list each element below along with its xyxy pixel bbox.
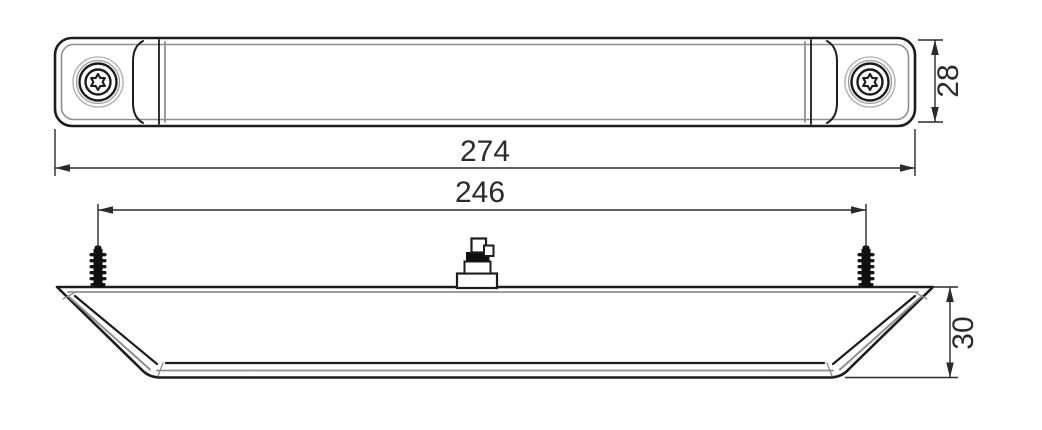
stud-thread (858, 259, 875, 262)
top-view-housing-outline (55, 38, 915, 126)
stud-thread (858, 277, 875, 280)
torx-screw-left-icon (73, 57, 123, 107)
stud-thread (90, 277, 107, 280)
stud-thread (90, 271, 107, 274)
dimension-fixing-centres: 246 (98, 176, 866, 248)
stud-thread (858, 253, 875, 256)
dim-274-arrow-left (55, 164, 70, 172)
stud-thread (90, 259, 107, 262)
stud-thread (91, 283, 106, 286)
dimension-overall-length: 274 (55, 129, 915, 176)
stud-thread (90, 253, 107, 256)
dim-246-label: 246 (455, 176, 505, 209)
dim-30-arrow-top (946, 287, 954, 302)
dim-28-label: 28 (932, 64, 965, 97)
stud-thread (90, 265, 107, 268)
connector-plug (457, 239, 497, 289)
dim-28-arrow-top (931, 40, 939, 55)
dim-274-label: 274 (460, 135, 510, 168)
dim-274-arrow-right (900, 164, 915, 172)
stud-thread (858, 271, 875, 274)
connector-latch (484, 246, 494, 257)
connector-base (457, 274, 497, 289)
top-view (55, 38, 915, 126)
stud-thread (858, 265, 875, 268)
technical-drawing-page: 274 246 28 30 (0, 0, 1042, 430)
dim-246-arrow-left (98, 206, 113, 214)
dim-246-arrow-right (851, 206, 866, 214)
dim-30-arrow-bottom (946, 363, 954, 378)
connector-mid (465, 262, 491, 274)
mounting-stud-right (858, 246, 875, 288)
dim-28-arrow-bottom (931, 107, 939, 122)
torx-screw-right-icon (845, 57, 895, 107)
dimension-height: 28 (918, 40, 965, 122)
side-view (57, 239, 933, 378)
mounting-stud-left (90, 246, 107, 288)
stud-thread (859, 283, 874, 286)
dim-30-label: 30 (947, 316, 980, 349)
technical-drawing-canvas: 274 246 28 30 (0, 0, 1042, 430)
